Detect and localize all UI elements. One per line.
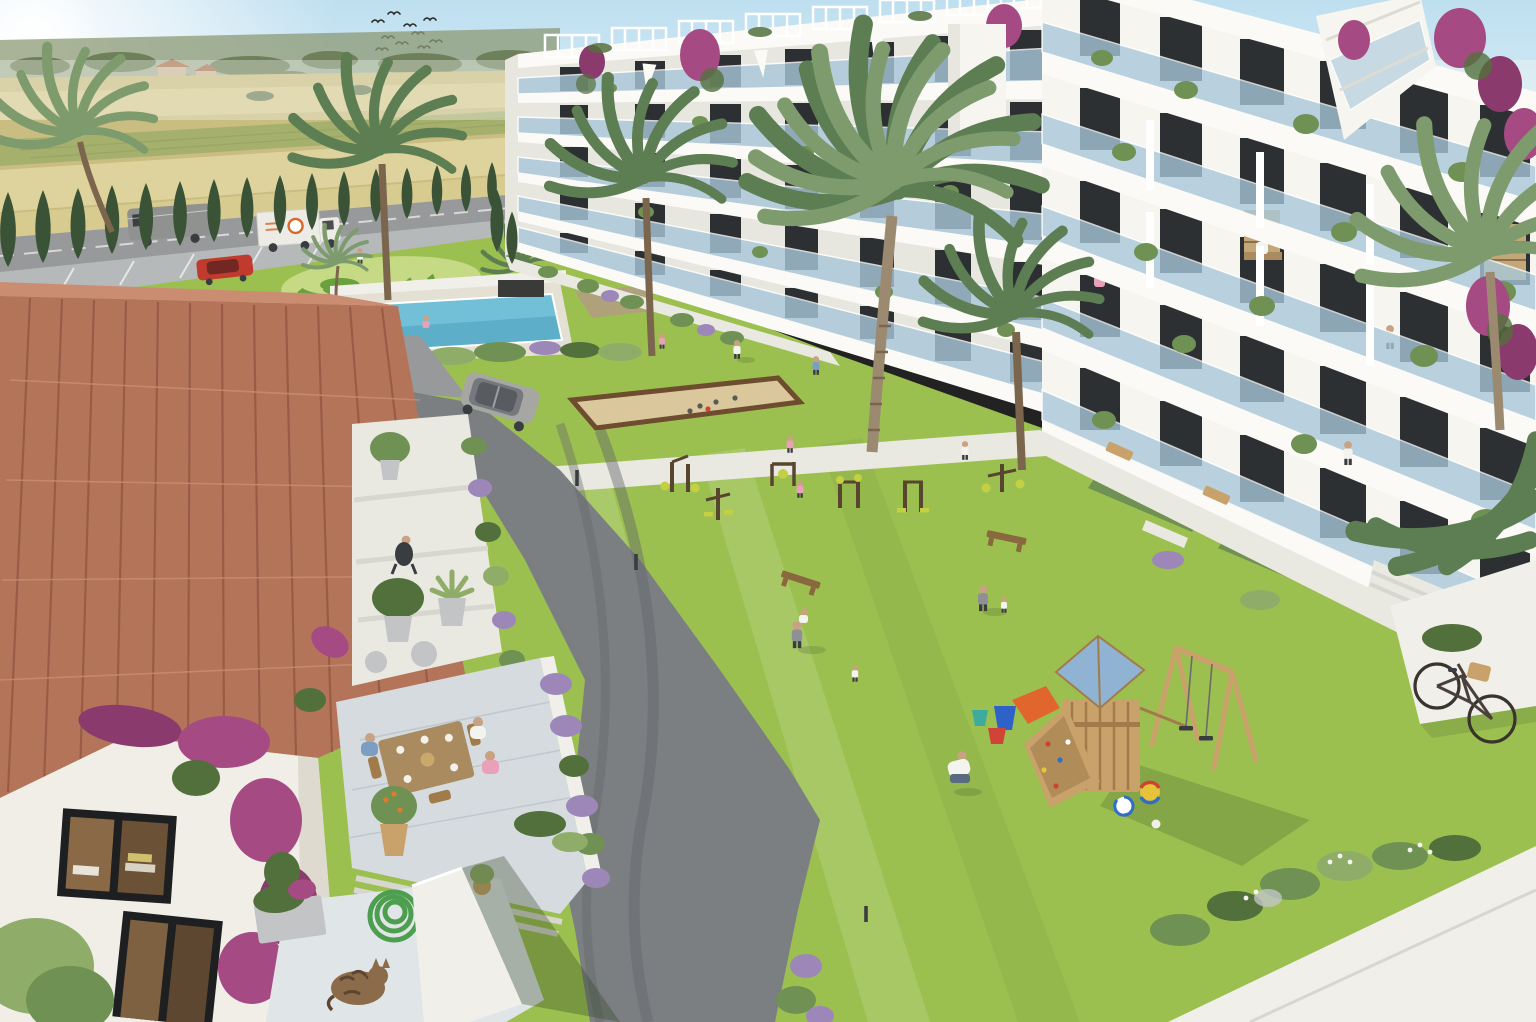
balcony-plant [1091, 50, 1113, 66]
stone-pot [365, 651, 387, 673]
diner [482, 760, 499, 774]
house-door [112, 911, 223, 1022]
black-planter [498, 280, 544, 297]
balcony-plant [1092, 411, 1116, 429]
balcony-plant [1291, 434, 1317, 454]
balcony-plant [1112, 143, 1136, 161]
balcony-plant [752, 246, 768, 258]
truck-logo [288, 218, 303, 233]
diner [361, 742, 378, 756]
diner [470, 726, 486, 739]
light-bollard [864, 906, 868, 922]
balcony-plant [1174, 81, 1198, 99]
balcony-plant [1172, 335, 1196, 353]
scene-canvas [0, 0, 1536, 1022]
light-bollard [634, 554, 638, 570]
balcony-plant [1410, 345, 1438, 367]
stone-pot [411, 641, 437, 667]
swing-seat [1199, 736, 1213, 741]
balcony-plant [1249, 296, 1275, 316]
rendered-scene [0, 0, 1536, 1022]
swing-seat [1179, 726, 1193, 731]
balcony-plant [1134, 243, 1158, 261]
light-bollard [575, 470, 579, 486]
corner-shrub [514, 811, 566, 837]
house-window [57, 808, 177, 904]
windowsill-books [73, 865, 100, 876]
balcony-plant [1293, 114, 1319, 134]
baby [799, 615, 808, 623]
